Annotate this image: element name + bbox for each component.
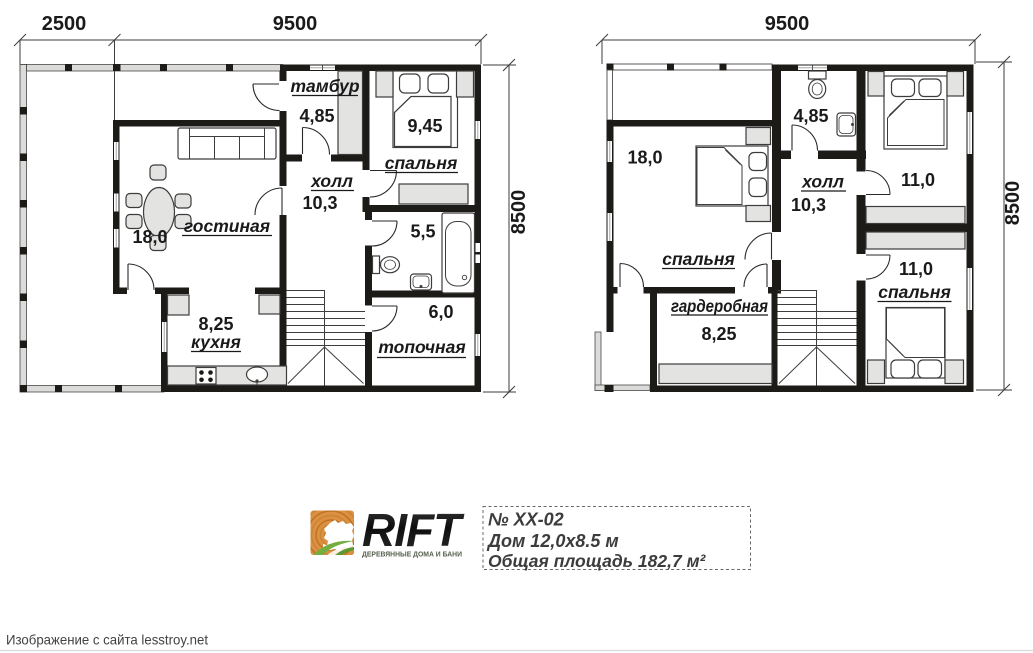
svg-text:11,0: 11,0 (901, 170, 935, 190)
svg-text:холл: холл (801, 172, 844, 192)
svg-text:10,3: 10,3 (791, 195, 826, 215)
svg-text:спальня: спальня (662, 249, 735, 269)
svg-text:спальня: спальня (385, 153, 458, 173)
svg-text:тамбур: тамбур (290, 76, 359, 96)
svg-text:Общая площадь 182,7 м²: Общая площадь 182,7 м² (488, 551, 707, 571)
svg-text:8500: 8500 (1002, 181, 1024, 226)
svg-text:10,3: 10,3 (302, 193, 337, 213)
svg-text:8500: 8500 (508, 190, 530, 235)
svg-text:6,0: 6,0 (428, 302, 453, 322)
svg-text:2500: 2500 (42, 13, 87, 35)
svg-text:RIFT: RIFT (362, 504, 465, 556)
svg-text:гардеробная: гардеробная (671, 296, 768, 316)
svg-text:№ ХХ-02: № ХХ-02 (488, 510, 564, 530)
svg-text:Изображение с сайта lesstroy.n: Изображение с сайта lesstroy.net (6, 632, 208, 648)
svg-text:4,85: 4,85 (299, 106, 334, 126)
svg-text:4,85: 4,85 (793, 106, 828, 126)
svg-text:ДЕРЕВЯННЫЕ ДОМА И БАНИ: ДЕРЕВЯННЫЕ ДОМА И БАНИ (362, 550, 462, 559)
svg-text:9,45: 9,45 (407, 116, 442, 136)
svg-text:9500: 9500 (765, 13, 810, 35)
svg-text:8,25: 8,25 (701, 324, 736, 344)
svg-text:гостиная: гостиная (184, 216, 270, 236)
svg-text:Дом 12,0х8.5 м: Дом 12,0х8.5 м (486, 531, 619, 551)
svg-text:топочная: топочная (378, 337, 465, 357)
svg-text:спальня: спальня (878, 282, 951, 302)
svg-text:8,25: 8,25 (198, 314, 233, 334)
svg-text:кухня: кухня (191, 332, 241, 352)
svg-text:холл: холл (310, 171, 353, 191)
svg-text:18,0: 18,0 (627, 148, 662, 168)
svg-text:11,0: 11,0 (899, 259, 933, 279)
svg-text:9500: 9500 (273, 13, 318, 35)
svg-text:5,5: 5,5 (410, 222, 435, 242)
svg-text:18,0: 18,0 (132, 227, 167, 247)
